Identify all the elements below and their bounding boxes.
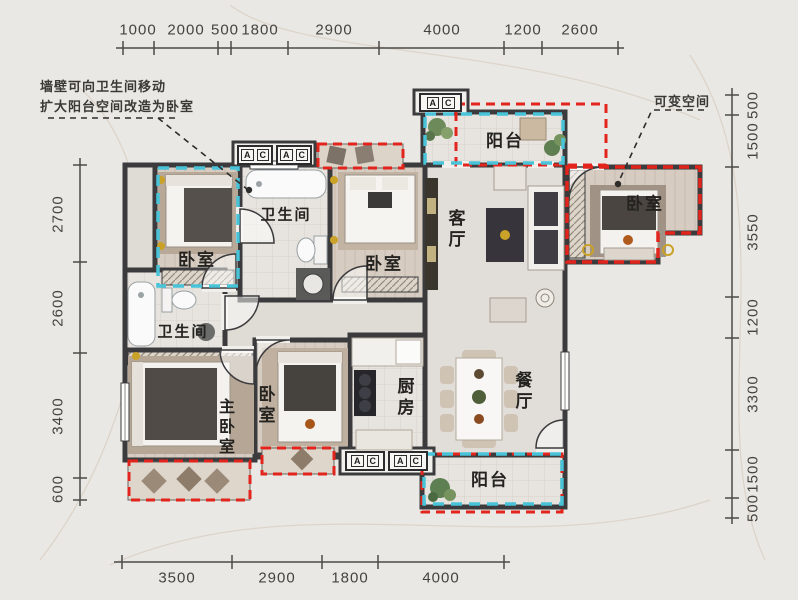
ac-letter-a: A bbox=[280, 149, 293, 161]
dim-top-1: 2000 bbox=[167, 22, 204, 39]
room-label-bathroom-lower: 卫生间 bbox=[157, 321, 208, 342]
dim-left-2: 3400 bbox=[50, 397, 67, 434]
flexible-space-label: 可变空间 bbox=[654, 91, 710, 110]
dim-left-1: 2600 bbox=[50, 289, 67, 326]
room-label-dining-room: 餐厅 bbox=[510, 371, 535, 413]
dim-left-0: 2700 bbox=[50, 195, 67, 232]
dim-bottom-0: 3500 bbox=[158, 570, 195, 587]
dim-right-3: 1200 bbox=[745, 298, 762, 335]
room-label-living-room: 客厅 bbox=[443, 209, 468, 251]
dim-bottom-3: 4000 bbox=[422, 570, 459, 587]
dim-right-2: 3550 bbox=[745, 213, 762, 250]
ac-letter-c: C bbox=[367, 455, 380, 467]
ac-letter-a: A bbox=[427, 97, 440, 109]
dim-top-4: 2900 bbox=[315, 22, 352, 39]
dim-top-6: 1200 bbox=[504, 22, 541, 39]
room-label-balcony-bottom: 阳台 bbox=[471, 466, 509, 491]
room-label-bedroom-middle: 卧室 bbox=[365, 250, 403, 275]
room-label-master-bedroom: 主卧室 bbox=[212, 398, 236, 458]
ac-platform-2: AC bbox=[276, 145, 312, 165]
ac-platform-1: AC bbox=[237, 145, 273, 165]
dim-right-1: 1500 bbox=[745, 122, 762, 159]
room-label-bedroom-top-left: 卧室 bbox=[178, 246, 216, 271]
dim-top-0: 1000 bbox=[119, 22, 156, 39]
ac-platform-4: AC bbox=[345, 451, 385, 471]
ac-letter-a: A bbox=[351, 455, 364, 467]
dim-right-6: 500 bbox=[745, 494, 762, 522]
dim-top-2: 500 bbox=[211, 22, 239, 39]
floor-plan-canvas: 1000 2000 500 1800 2900 4000 1200 2600 3… bbox=[0, 0, 798, 600]
dim-bottom-2: 1800 bbox=[331, 570, 368, 587]
ac-platform-3: AC bbox=[419, 93, 462, 112]
dim-bottom-1: 2900 bbox=[258, 570, 295, 587]
ac-letter-c: C bbox=[257, 149, 270, 161]
dim-top-5: 4000 bbox=[423, 22, 460, 39]
ac-letter-c: C bbox=[410, 455, 423, 467]
ac-letter-a: A bbox=[394, 455, 407, 467]
dim-right-0: 500 bbox=[745, 91, 762, 119]
dim-top-7: 2600 bbox=[561, 22, 598, 39]
room-label-bathroom-top: 卫生间 bbox=[260, 204, 311, 225]
dim-right-4: 3300 bbox=[745, 375, 762, 412]
ac-letter-a: A bbox=[241, 149, 254, 161]
dim-right-5: 1500 bbox=[745, 455, 762, 492]
room-label-bedroom-right: 卧室 bbox=[626, 190, 664, 215]
dim-left-3: 600 bbox=[50, 475, 67, 503]
room-label-balcony-top: 阳台 bbox=[486, 127, 524, 152]
ac-letter-c: C bbox=[442, 97, 455, 109]
renovation-note-line1: 墙壁可向卫生间移动 bbox=[40, 76, 166, 95]
ac-letter-c: C bbox=[296, 149, 309, 161]
room-label-kitchen: 厨房 bbox=[392, 377, 417, 419]
dim-top-3: 1800 bbox=[241, 22, 278, 39]
ac-platform-5: AC bbox=[388, 451, 428, 471]
room-label-bedroom-bottom: 卧室 bbox=[253, 385, 278, 427]
renovation-note-line2: 扩大阳台空间改造为卧室 bbox=[40, 96, 194, 115]
